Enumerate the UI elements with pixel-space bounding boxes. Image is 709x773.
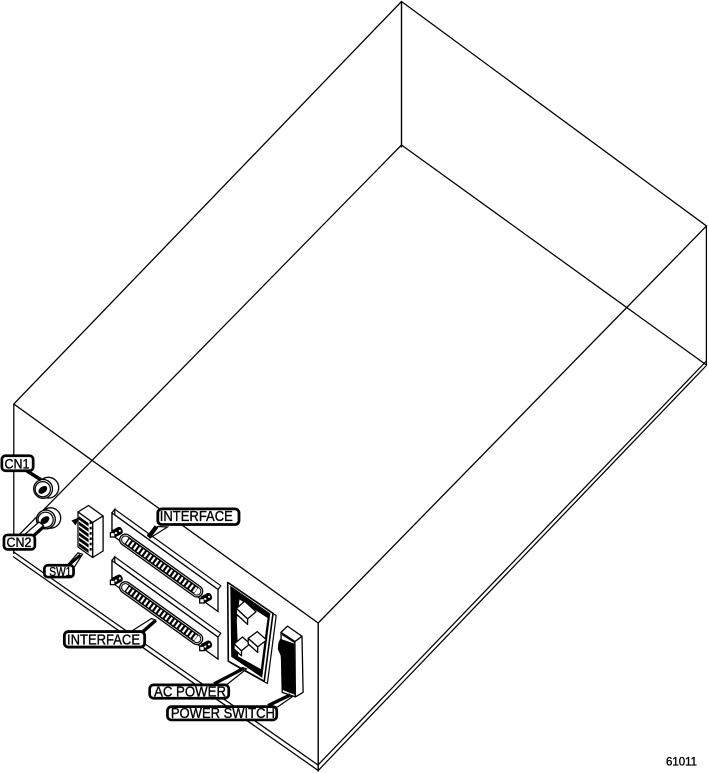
svg-text:CN2: CN2 (7, 535, 32, 550)
svg-text:POWER SWITCH: POWER SWITCH (171, 706, 275, 722)
svg-text:AC POWER: AC POWER (154, 684, 226, 700)
svg-text:INTERFACE: INTERFACE (67, 632, 140, 649)
svg-text:61011: 61011 (666, 757, 697, 769)
svg-text:CN1: CN1 (5, 457, 30, 472)
svg-text:INTERFACE: INTERFACE (160, 508, 233, 525)
svg-text:SW1: SW1 (49, 564, 71, 579)
